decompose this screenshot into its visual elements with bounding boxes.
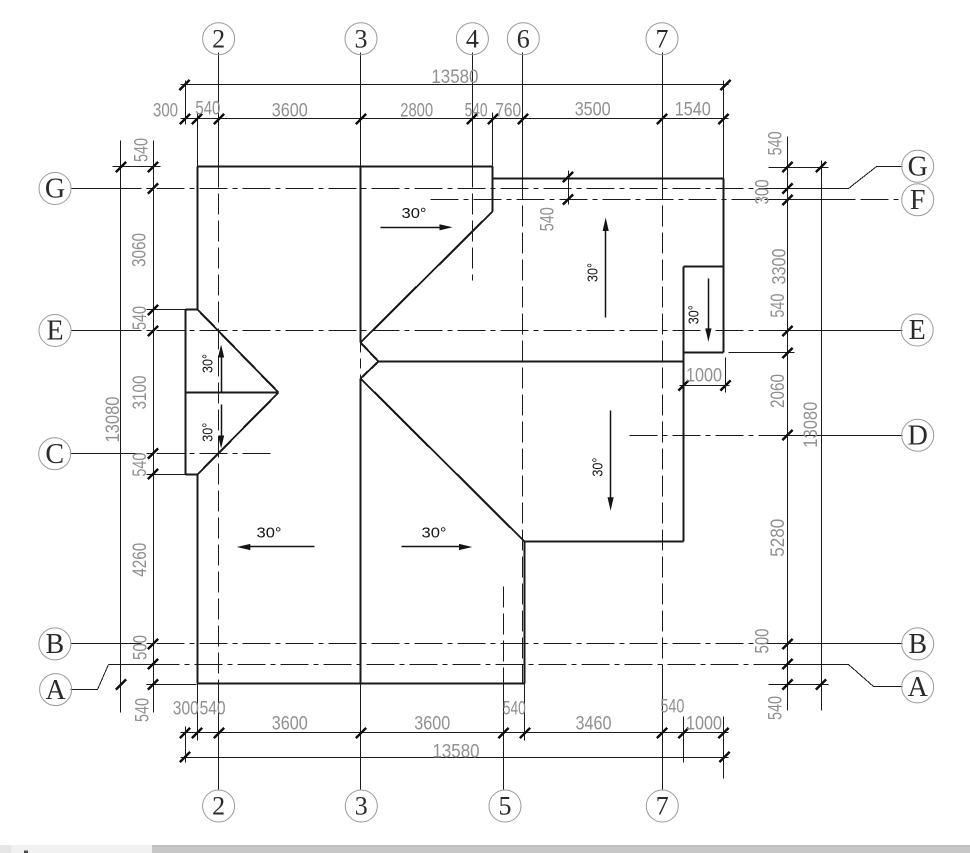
svg-text:7: 7 [656, 24, 669, 53]
svg-text:500: 500 [753, 629, 774, 654]
svg-text:1000: 1000 [686, 365, 722, 386]
svg-text:2: 2 [212, 792, 225, 821]
svg-text:1000: 1000 [686, 714, 722, 735]
svg-text:4: 4 [466, 24, 479, 53]
svg-text:540: 540 [660, 697, 684, 718]
svg-text:30°: 30° [422, 525, 447, 542]
svg-text:30°: 30° [686, 305, 703, 324]
svg-text:F: F [910, 185, 926, 216]
svg-text:B: B [908, 629, 927, 660]
svg-text:2800: 2800 [400, 101, 433, 122]
svg-text:G: G [908, 152, 928, 183]
svg-text:3100: 3100 [130, 376, 151, 410]
svg-text:D: D [908, 421, 928, 452]
svg-text:3600: 3600 [272, 101, 308, 122]
svg-text:3500: 3500 [575, 100, 611, 121]
svg-text:3: 3 [355, 792, 368, 821]
svg-text:30°: 30° [402, 205, 427, 222]
svg-text:G: G [45, 174, 65, 205]
svg-text:A: A [45, 675, 66, 706]
svg-text:13080: 13080 [103, 397, 124, 443]
svg-text:540: 540 [200, 699, 226, 720]
svg-text:3600: 3600 [272, 714, 308, 735]
svg-text:540: 540 [130, 453, 151, 477]
svg-text:4260: 4260 [130, 543, 151, 577]
svg-text:6: 6 [517, 24, 530, 53]
svg-text:5280: 5280 [768, 519, 789, 557]
svg-text:540: 540 [503, 699, 526, 720]
svg-text:C: C [45, 439, 64, 470]
svg-text:E: E [909, 315, 926, 346]
svg-text:500: 500 [131, 635, 152, 660]
svg-text:540: 540 [538, 207, 559, 231]
svg-text:13580: 13580 [431, 67, 478, 88]
svg-text:3060: 3060 [130, 233, 151, 267]
svg-text:540: 540 [195, 99, 220, 120]
svg-text:13580: 13580 [433, 741, 480, 762]
svg-text:13080: 13080 [801, 402, 822, 448]
svg-text:A: A [908, 672, 929, 703]
svg-text:2: 2 [212, 24, 225, 53]
svg-text:3: 3 [355, 24, 368, 53]
svg-text:300: 300 [153, 101, 178, 122]
svg-text:540: 540 [768, 294, 789, 318]
svg-text:540: 540 [766, 131, 787, 155]
svg-text:300: 300 [173, 699, 199, 720]
svg-text:1540: 1540 [675, 100, 711, 121]
svg-text:30°: 30° [200, 423, 217, 442]
svg-text:540: 540 [465, 101, 488, 122]
svg-text:30°: 30° [200, 354, 217, 373]
svg-text:3600: 3600 [414, 714, 450, 735]
svg-text:E: E [46, 316, 63, 347]
svg-text:760: 760 [495, 101, 521, 122]
svg-text:540: 540 [766, 696, 787, 720]
svg-text:3300: 3300 [770, 249, 791, 285]
svg-text:30°: 30° [585, 263, 602, 282]
svg-text:30°: 30° [257, 525, 282, 542]
svg-text:540: 540 [132, 138, 153, 162]
svg-text:5: 5 [499, 792, 512, 821]
svg-text:2060: 2060 [768, 374, 789, 408]
svg-text:540: 540 [133, 698, 154, 722]
svg-text:3460: 3460 [576, 714, 612, 735]
svg-text:7: 7 [656, 792, 669, 821]
svg-text:300: 300 [753, 179, 774, 204]
svg-text:540: 540 [130, 306, 151, 330]
svg-text:30°: 30° [590, 458, 607, 477]
svg-text:B: B [46, 629, 65, 660]
